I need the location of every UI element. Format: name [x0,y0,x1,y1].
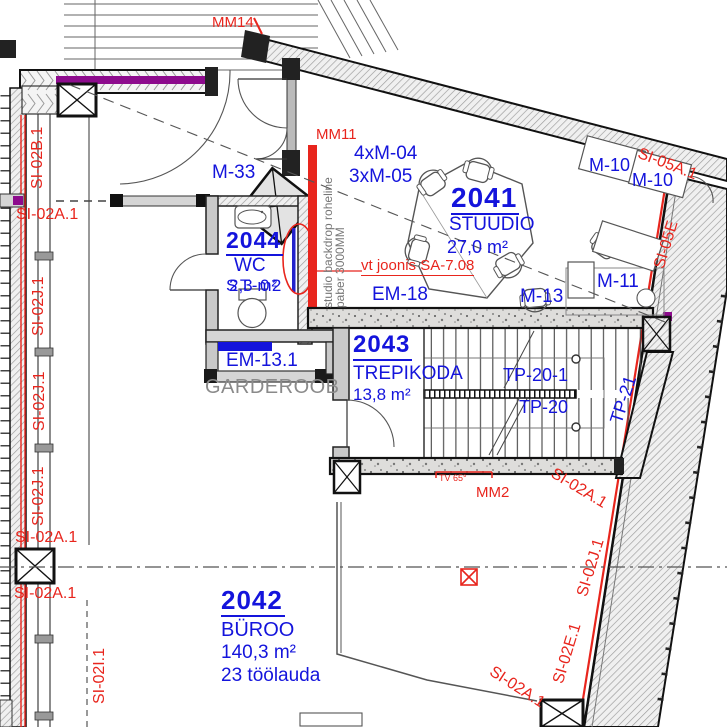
element-tag-em13-1: EM-13.1 [226,351,298,371]
marker-mm2: MM2 [476,485,509,501]
backdrop-red-bar [308,145,317,307]
room-2042-area: 140,3 m² [221,643,296,663]
stair-door-arc [347,400,394,447]
desk-m11 [566,221,664,315]
furniture-tag-m13: M-13 [520,287,563,307]
room-2044-name: WC [234,256,266,276]
marker-x-icon [461,569,477,585]
column-icon [22,84,96,116]
wall-tag-si02j1-w3: SI-02J.1 [31,466,48,526]
column-icon [16,549,54,583]
marker-tv65: TV 65° [439,474,467,483]
wall-tag-si02b1: SI-02B.1 [30,127,47,189]
wall-tag-si02j1-w2: SI-02J.1 [32,371,49,431]
element-tag-st02: ST-02 [226,277,284,295]
wc-sink-icon [235,206,271,228]
marker-mm11: MM11 [316,127,357,143]
wall-tag-si02a1-nw: SI-02A.1 [16,207,78,224]
magenta-tick [13,196,23,205]
column-icon [643,317,670,351]
room-2041-name: STUUDIO [449,215,535,235]
floor-box [300,713,362,726]
floor-plan: MM14 MM11 M-33 4xM-04 3xM-05 2041 STUUDI… [0,0,727,727]
wall-tag-si02i1: SI-02I.1 [92,648,109,704]
room-2042-number: 2042 [221,587,285,617]
facade-stub-icon [0,40,16,58]
reference-note: vt joonis SA-7.08 [361,258,474,276]
wall-tag-si02a1-wmid: SI-02A.1 [15,530,77,547]
furniture-tag-m11: M-11 [597,272,639,292]
studio-south-wall [308,308,653,328]
marker-mm14: MM14 [212,15,254,31]
furniture-tag-m05: 3xM-05 [349,167,412,187]
furniture-tag-m10: M-10 [589,156,630,175]
furniture-tag-m33: M-33 [212,163,255,183]
room-2043-name: TREPIKODA [353,364,463,384]
wall-tag-si02j1-w1: SI-02J.1 [31,276,48,336]
blue-element-line [292,228,296,292]
element-tag-tp20-1: TP-20-1 [503,366,568,385]
room-2042-name: BÜROO [221,620,294,641]
backdrop-note: studio backdrop roheline paber 3000MM [322,177,347,308]
column-icon [334,461,360,493]
backdrop-note-line2: paber 3000MM [334,177,346,308]
room-2043-area: 13,8 m² [353,386,411,404]
furniture-tag-m04: 4xM-04 [354,144,417,164]
exterior-roof-lines [318,0,398,58]
zone-label-garderoob: GARDEROOB [205,377,340,398]
room-2044-number: 2044 [226,229,283,256]
room-2042-note: 23 töölauda [221,666,320,686]
room-2041-area: 27,0 m² [447,238,508,257]
column-icon [541,700,583,727]
room-2043-number: 2043 [353,333,412,361]
wall-tag-si02a1-wlow: SI-02A.1 [14,586,76,603]
room-2041-number: 2041 [451,183,519,215]
wall-cap [614,458,624,474]
wc-door-arc [170,254,206,290]
element-tag-em18: EM-18 [372,285,428,305]
element-tag-tp20: TP-20 [519,398,568,417]
